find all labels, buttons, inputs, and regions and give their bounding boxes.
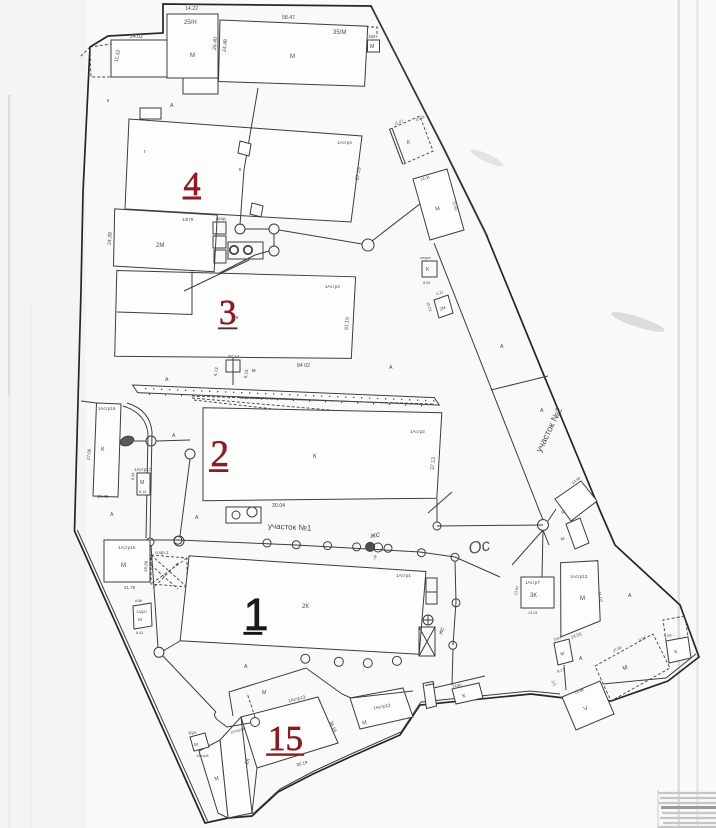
svg-text:58.47: 58.47: [282, 15, 295, 21]
svg-text:г: г: [144, 149, 146, 155]
svg-text:10.45: 10.45: [97, 494, 109, 499]
svg-text:35/М: 35/М: [333, 30, 346, 36]
svg-text:8.41: 8.41: [136, 631, 143, 635]
svg-text:А: А: [500, 344, 504, 350]
svg-text:37.13: 37.13: [430, 457, 437, 471]
svg-text:26.40: 26.40: [212, 37, 219, 51]
svg-text:1Астр13: 1Астр13: [570, 574, 588, 579]
svg-text:2: 2: [211, 434, 230, 475]
svg-text:1Астр17: 1Астр17: [134, 467, 152, 472]
svg-text:1Астр3: 1Астр3: [325, 284, 340, 289]
svg-text:37.14: 37.14: [228, 354, 240, 359]
svg-text:16.89: 16.89: [143, 560, 149, 572]
svg-text:К: К: [426, 267, 429, 273]
svg-text:М: М: [138, 617, 142, 622]
svg-text:соор.1: соор.1: [155, 550, 169, 555]
svg-text:8.34: 8.34: [131, 473, 136, 481]
svg-text:М: М: [580, 596, 585, 602]
svg-text:М: М: [194, 742, 198, 747]
svg-text:1Астр4: 1Астр4: [337, 140, 352, 145]
svg-text:13/78: 13/78: [182, 217, 194, 222]
svg-text:24.48: 24.48: [222, 39, 229, 53]
svg-text:1Астр7: 1Астр7: [525, 580, 540, 585]
svg-text:А: А: [628, 593, 632, 599]
svg-text:15: 15: [268, 719, 303, 758]
svg-text:А: А: [195, 515, 199, 521]
svg-text:30.04: 30.04: [272, 503, 285, 509]
svg-text:К: К: [101, 447, 105, 453]
svg-text:1Астр8: 1Астр8: [196, 754, 209, 758]
svg-text:3Д/Н: 3Д/Н: [188, 731, 197, 735]
svg-text:3К: 3К: [530, 593, 537, 599]
svg-text:1Астр16: 1Астр16: [98, 406, 116, 411]
svg-text:8.86: 8.86: [135, 599, 142, 603]
svg-text:24.39: 24.39: [107, 232, 114, 245]
svg-text:М: М: [140, 480, 144, 486]
svg-text:м: м: [252, 368, 256, 374]
svg-text:8.16: 8.16: [139, 490, 146, 494]
svg-text:1ЗД/Н: 1ЗД/Н: [136, 610, 147, 614]
svg-text:А: А: [110, 512, 114, 518]
svg-text:М: М: [121, 563, 126, 569]
svg-text:8.00: 8.00: [423, 281, 430, 285]
svg-text:вход: вход: [216, 216, 226, 221]
svg-text:13.04: 13.04: [528, 611, 538, 615]
svg-text:А: А: [244, 664, 248, 670]
svg-text:27.06: 27.06: [86, 448, 92, 460]
svg-text:2М: 2М: [156, 243, 164, 249]
svg-text:А: А: [540, 408, 544, 414]
svg-text:21.78: 21.78: [124, 585, 136, 590]
svg-text:М: М: [370, 44, 374, 50]
svg-text:М: М: [290, 54, 295, 60]
svg-text:А: А: [579, 656, 583, 662]
svg-text:А: А: [172, 433, 176, 439]
svg-text:25/Н: 25/Н: [184, 20, 197, 26]
svg-text:1Астр1: 1Астр1: [396, 573, 411, 578]
svg-text:А: А: [389, 365, 393, 371]
svg-text:91.19: 91.19: [344, 317, 351, 331]
svg-text:К: К: [313, 454, 317, 460]
svg-text:1Астр15: 1Астр15: [118, 545, 136, 550]
svg-text:А: А: [165, 377, 169, 383]
svg-text:жс: жс: [369, 530, 381, 541]
svg-text:2К: 2К: [302, 604, 309, 610]
svg-text:16/Н: 16/Н: [368, 34, 378, 39]
svg-text:24.02: 24.02: [130, 34, 143, 40]
svg-text:3: 3: [219, 293, 237, 332]
svg-text:М: М: [190, 53, 195, 59]
svg-text:1Астр2: 1Астр2: [410, 429, 425, 434]
svg-text:14.22: 14.22: [185, 6, 198, 12]
svg-text:К: К: [407, 140, 410, 146]
svg-text:М: М: [262, 690, 266, 696]
svg-text:А: А: [170, 103, 174, 109]
svg-text:опора: опора: [420, 256, 431, 260]
svg-text:84 02: 84 02: [297, 363, 310, 369]
